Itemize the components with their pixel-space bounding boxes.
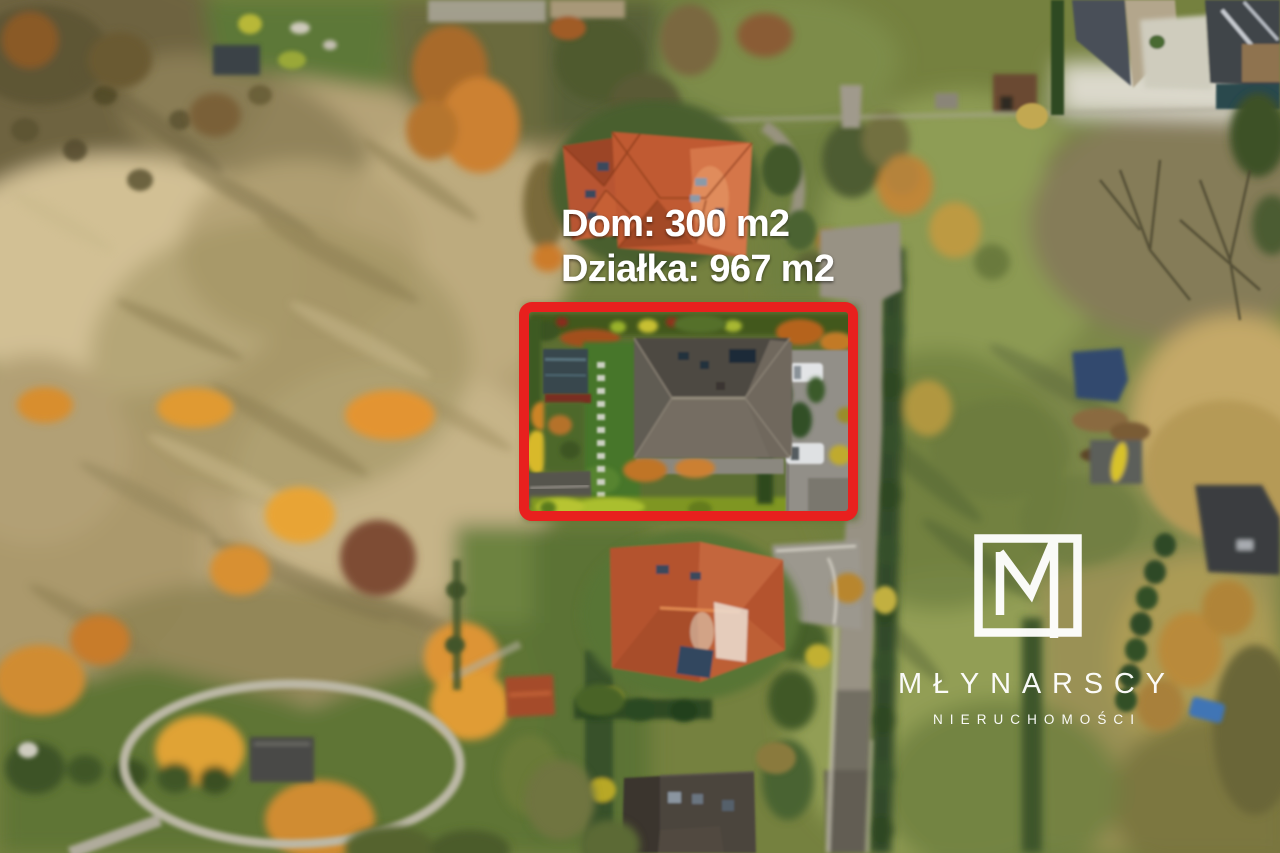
svg-text:Dom: 300 m2: Dom: 300 m2 (561, 203, 790, 245)
svg-text:Działka: 967 m2: Działka: 967 m2 (561, 248, 835, 290)
svg-text:NIERUCHOMOŚCI: NIERUCHOMOŚCI (933, 712, 1138, 727)
svg-text:MŁYNARSCY: MŁYNARSCY (898, 668, 1172, 700)
